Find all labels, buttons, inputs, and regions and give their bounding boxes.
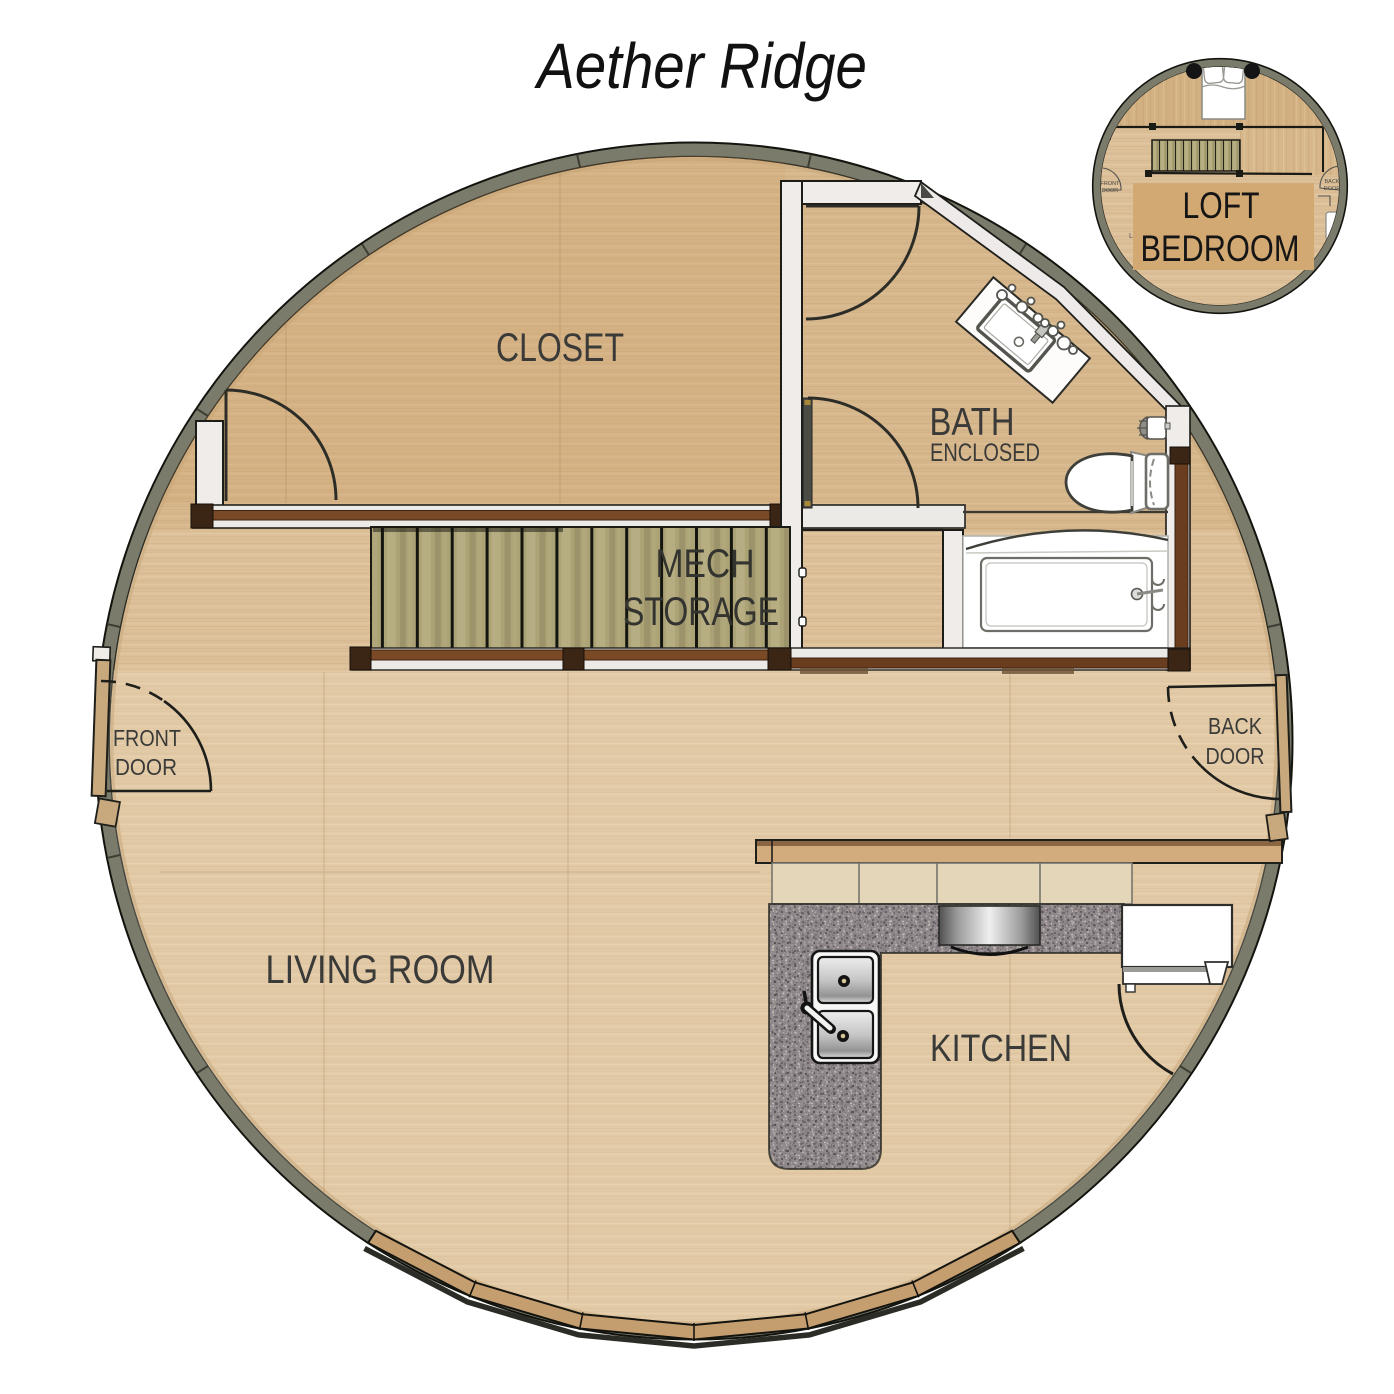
svg-text:CLOSET: CLOSET [496, 326, 624, 370]
svg-text:DOOR: DOOR [1102, 188, 1119, 194]
svg-text:KITCHEN: KITCHEN [930, 1028, 1072, 1070]
svg-text:DOOR: DOOR [1324, 186, 1341, 192]
svg-text:FRONT: FRONT [1101, 181, 1121, 187]
svg-text:BEDROOM: BEDROOM [1141, 228, 1300, 269]
svg-text:LIVING ROOM: LIVING ROOM [266, 948, 495, 992]
svg-text:BACK: BACK [1208, 713, 1263, 739]
svg-text:BACK: BACK [1325, 179, 1340, 185]
svg-text:BATH: BATH [930, 401, 1015, 444]
svg-text:Aether Ridge: Aether Ridge [533, 30, 867, 102]
svg-text:STORAGE: STORAGE [623, 590, 779, 634]
svg-text:ENCLOSED: ENCLOSED [930, 439, 1040, 467]
svg-text:FRONT: FRONT [113, 725, 181, 751]
svg-text:DOOR: DOOR [115, 754, 177, 780]
svg-text:MECH: MECH [656, 542, 755, 586]
svg-text:DOOR: DOOR [1206, 743, 1265, 769]
svg-text:LOFT: LOFT [1183, 185, 1260, 226]
